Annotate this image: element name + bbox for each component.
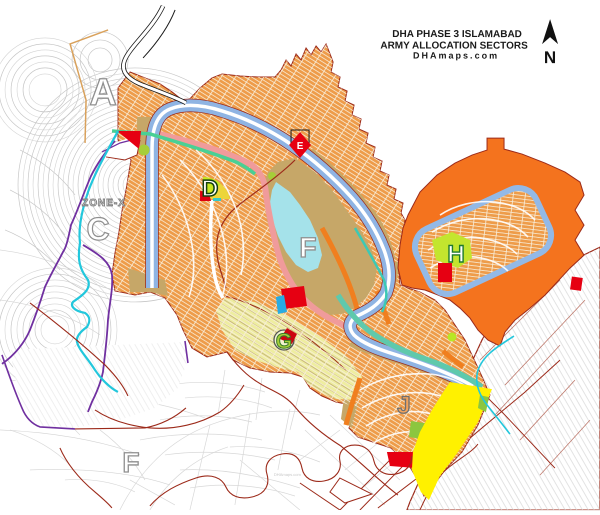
- svg-text:DHAmaps.com: DHAmaps.com: [413, 51, 499, 61]
- svg-text:C: C: [86, 211, 109, 247]
- svg-text:DHA PHASE 3 ISLAMABAD: DHA PHASE 3 ISLAMABAD: [392, 29, 522, 40]
- svg-text:D: D: [202, 175, 219, 201]
- svg-text:F: F: [122, 447, 139, 478]
- svg-text:ZONE-X: ZONE-X: [82, 198, 126, 209]
- svg-text:E: E: [297, 141, 304, 152]
- svg-text:H: H: [447, 241, 464, 268]
- svg-text:J: J: [397, 392, 410, 419]
- svg-text:N: N: [544, 48, 556, 67]
- svg-text:A: A: [89, 72, 116, 114]
- svg-text:G: G: [276, 330, 292, 353]
- svg-text:F: F: [299, 232, 316, 263]
- svg-text:DHAmaps.com: DHAmaps.com: [274, 472, 302, 477]
